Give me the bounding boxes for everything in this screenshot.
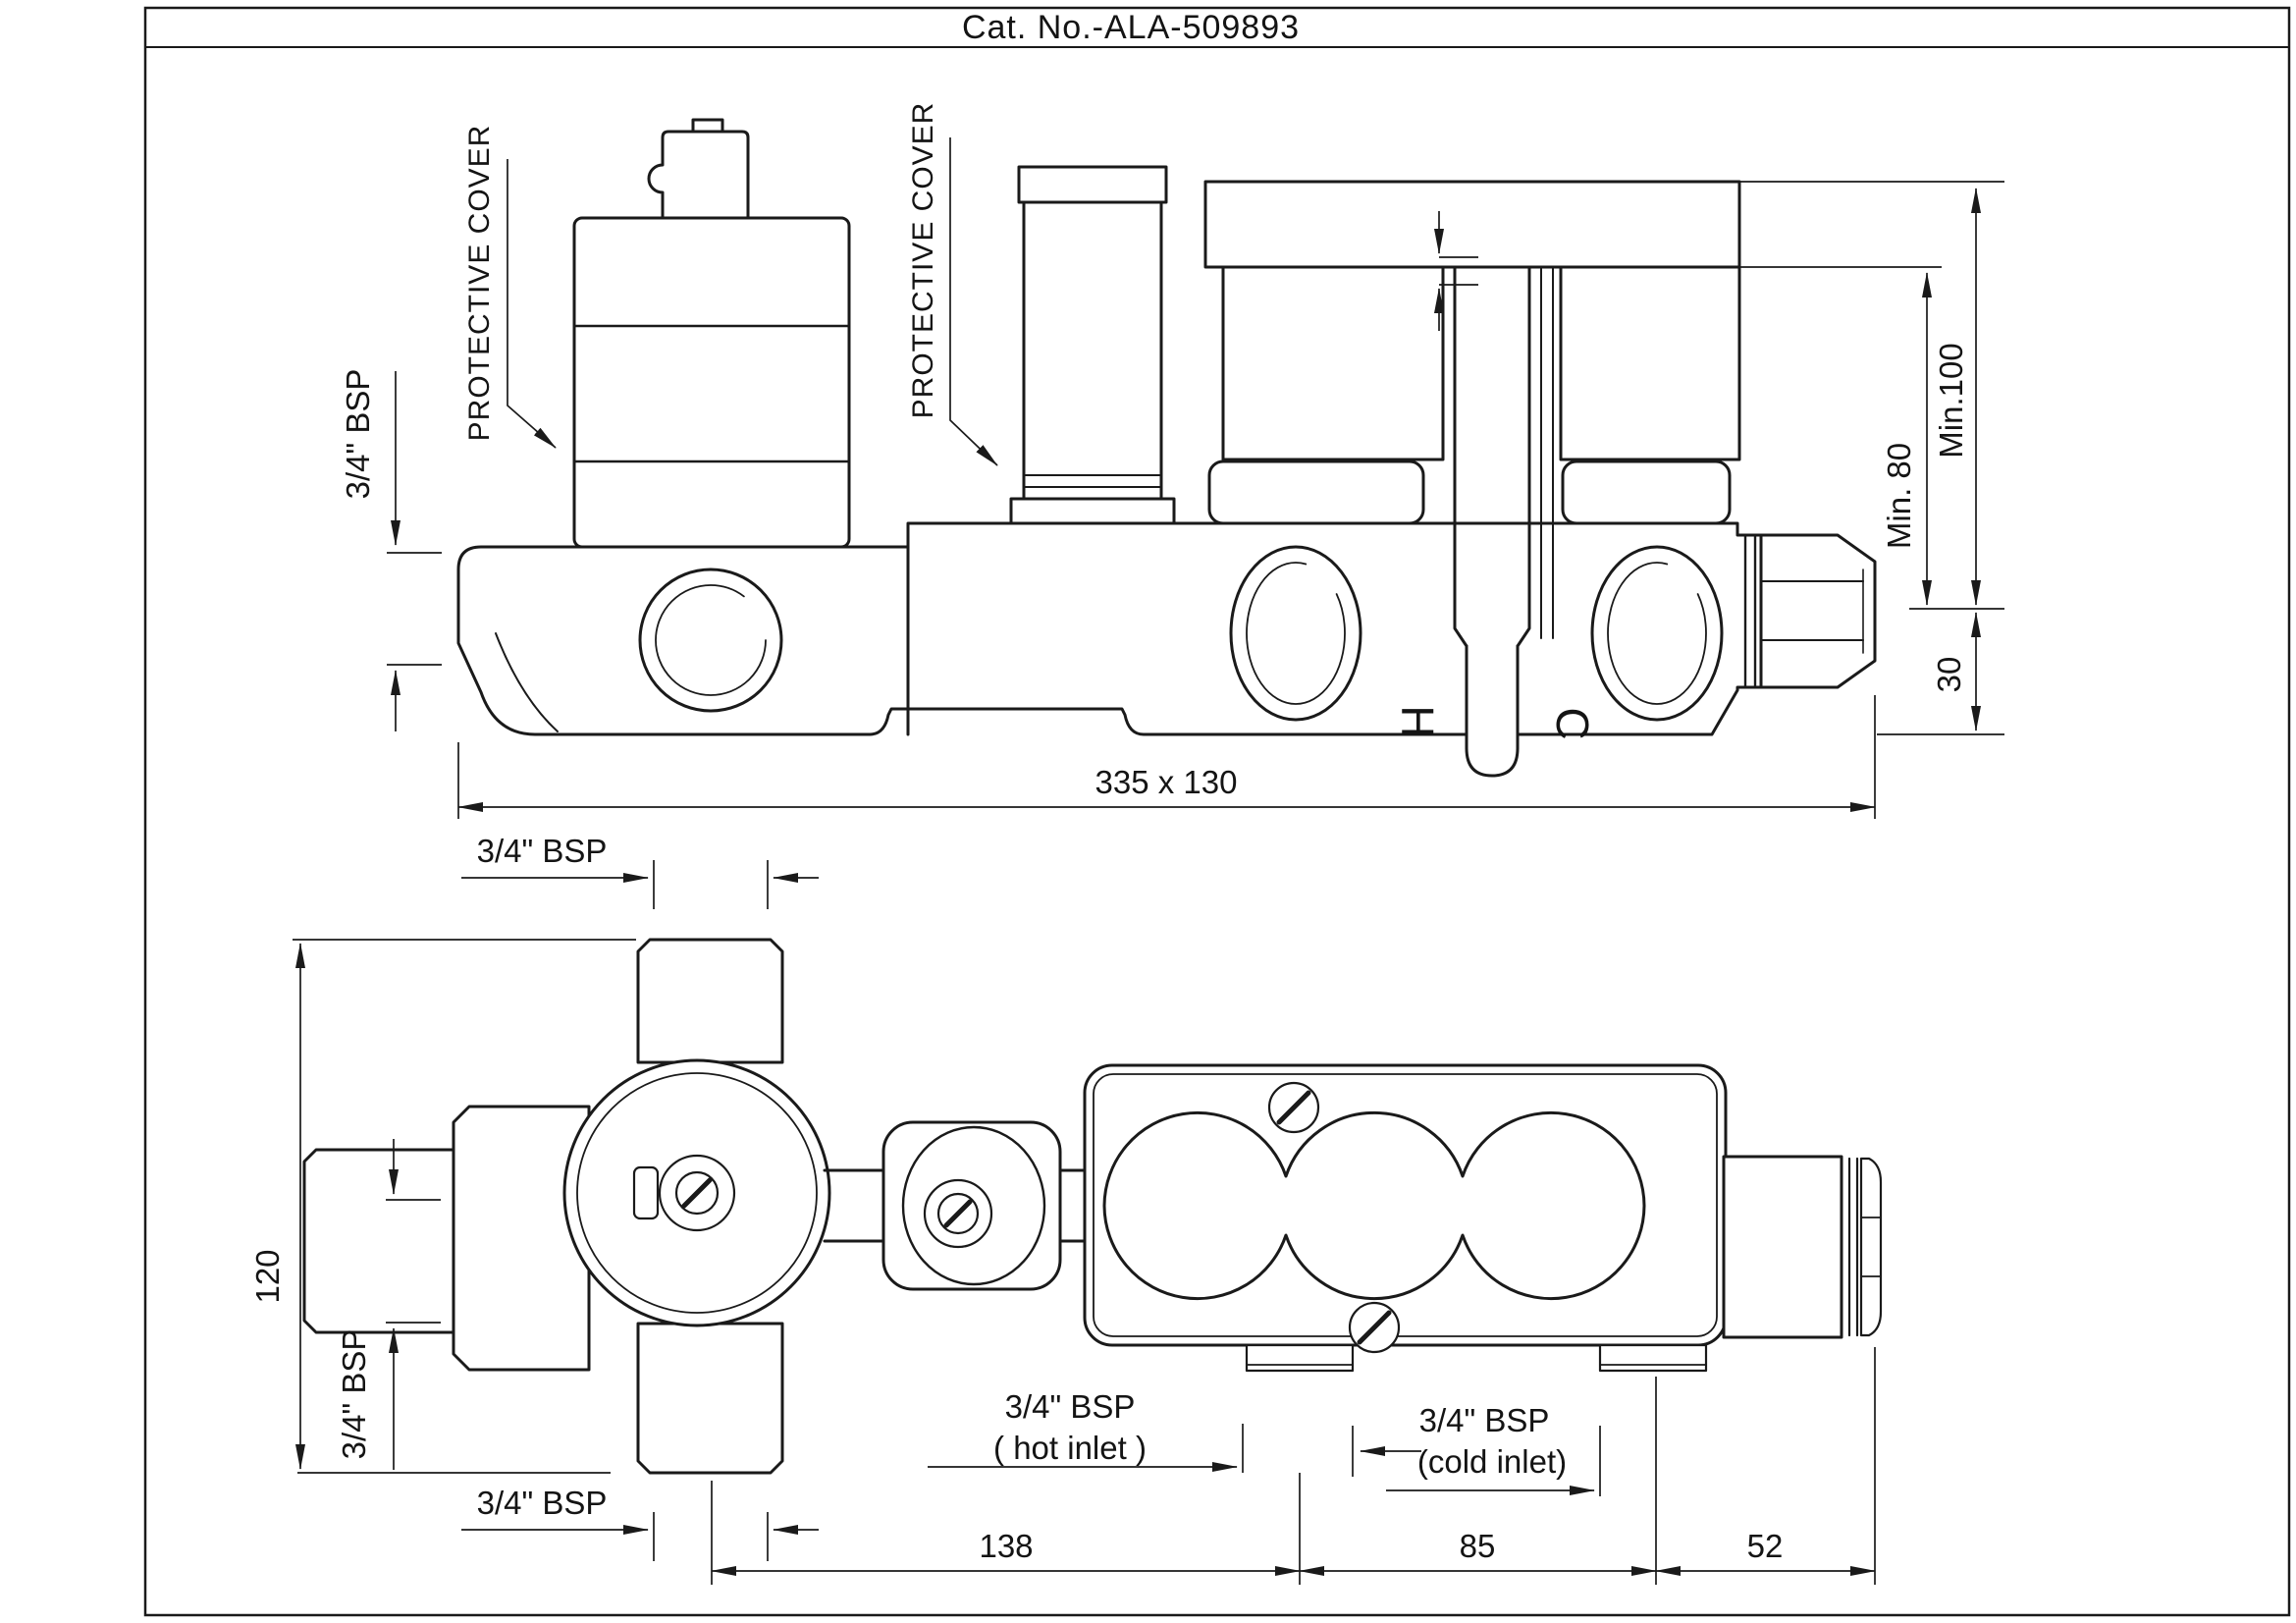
flange-bar-right (1563, 461, 1730, 523)
stub-body (1724, 1157, 1842, 1337)
cover-body (574, 218, 849, 547)
cold-marker: C (1547, 707, 1598, 739)
port-outer-ring (640, 569, 781, 711)
left-outlet-port (640, 569, 781, 711)
top-view (458, 120, 1875, 776)
catalog-number-title: Cat. No.-ALA-509893 (962, 9, 1300, 46)
cold-inlet-foot (1600, 1345, 1706, 1371)
bsp-top-bore-label: 3/4" BSP (477, 833, 608, 869)
cold-port-ring (1592, 547, 1722, 720)
cold-inlet-label-line1: 3/4" BSP (1419, 1402, 1550, 1438)
outlet-stub-plan (1724, 1157, 1881, 1337)
protective-cover-left-label: PROTECTIVE COVER (463, 125, 496, 442)
leader-protective-cover-left (507, 159, 556, 448)
cover-flare (1011, 499, 1174, 523)
bsp-arm-bore-label: 3/4" BSP (336, 1329, 372, 1460)
knob-tab (693, 120, 722, 132)
outlet-hex-end (1745, 535, 1875, 687)
cross-center-block (454, 1107, 589, 1370)
dim-30-label: 30 (1931, 657, 1967, 693)
protective-cover-mid-label: PROTECTIVE COVER (907, 102, 939, 419)
hot-port-ring (1231, 547, 1361, 720)
dim-min100-label: Min.100 (1933, 343, 1969, 458)
cover-cap (1019, 167, 1166, 202)
hot-inlet-label-line2: ( hot inlet ) (993, 1430, 1147, 1466)
dim-138-label: 138 (979, 1528, 1033, 1564)
drawing-sheet: Cat. No.-ALA-509893 (0, 0, 2296, 1623)
knob-tab-plan (634, 1167, 658, 1218)
flange-bar-left (1209, 461, 1423, 523)
dim-min80-label: Min. 80 (1881, 443, 1917, 549)
cross-left-arm (304, 1150, 454, 1332)
sub-block-left (1223, 267, 1443, 460)
dim-85-label: 85 (1460, 1528, 1496, 1564)
diverter-spout (1467, 646, 1518, 776)
cold-inlet-label-line2: (cold inlet) (1417, 1443, 1567, 1480)
cross-bottom-stub (638, 1324, 782, 1473)
hot-inlet-label-line1: 3/4" BSP (1005, 1388, 1136, 1425)
dim-overall-label: 335 x 130 (1095, 764, 1238, 800)
hot-marker: H (1392, 705, 1443, 737)
hot-inlet-foot (1247, 1345, 1353, 1371)
dim-120-label: 120 (249, 1249, 286, 1303)
stub-hex-end (1861, 1159, 1881, 1335)
mounting-plate (1205, 182, 1739, 267)
thermostat-block (1205, 182, 1739, 776)
protective-cover-left (574, 120, 849, 547)
bsp-left-bore-label: 3/4" BSP (340, 369, 376, 500)
diverter-cross-body (304, 940, 829, 1473)
dim-52-label: 52 (1747, 1528, 1784, 1564)
cover-cylinder (1024, 202, 1161, 499)
sub-block-right (1561, 267, 1739, 460)
hex-nut-outline (1761, 535, 1875, 687)
cad-drawing-canvas: Cat. No.-ALA-509893 (0, 0, 2296, 1623)
thermostat-head (825, 1122, 1088, 1289)
bsp-bottom-bore-label: 3/4" BSP (477, 1485, 608, 1521)
protective-cover-mid (1011, 167, 1174, 523)
triple-chamber-scallop (1104, 1112, 1644, 1298)
leader-protective-cover-mid (950, 137, 997, 465)
cover-knob (649, 132, 748, 218)
cross-top-stub (638, 940, 782, 1062)
manifold-housing-plan (1085, 1065, 1726, 1371)
